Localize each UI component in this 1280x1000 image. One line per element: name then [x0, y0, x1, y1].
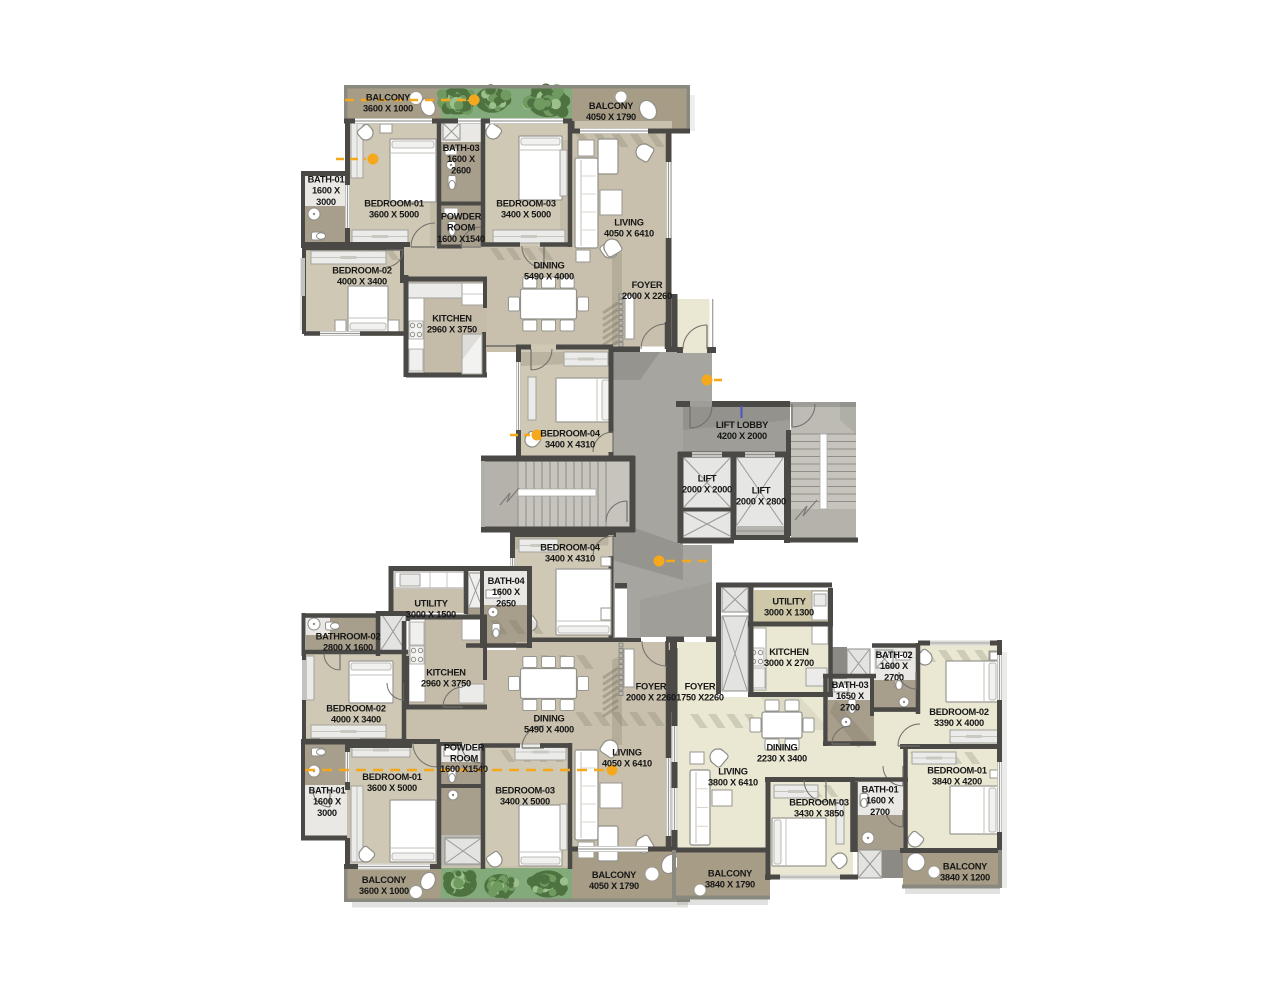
- svg-text:BALCONY: BALCONY: [592, 870, 637, 880]
- svg-text:BEDROOM-01: BEDROOM-01: [364, 199, 424, 209]
- svg-text:BATH-01: BATH-01: [309, 786, 346, 796]
- svg-text:1750 X2260: 1750 X2260: [676, 693, 724, 703]
- svg-text:2960 X 3750: 2960 X 3750: [421, 679, 471, 689]
- svg-text:2960 X 3750: 2960 X 3750: [427, 325, 477, 335]
- svg-text:KITCHEN: KITCHEN: [426, 668, 466, 678]
- svg-text:3840 X 1200: 3840 X 1200: [940, 873, 990, 883]
- svg-text:BALCONY: BALCONY: [943, 862, 988, 872]
- svg-text:3430 X 3850: 3430 X 3850: [794, 809, 844, 819]
- svg-text:LIVING: LIVING: [612, 748, 642, 758]
- svg-text:3000: 3000: [317, 808, 337, 818]
- svg-text:BEDROOM-02: BEDROOM-02: [929, 707, 989, 717]
- svg-text:2000 X 2000: 2000 X 2000: [682, 485, 732, 495]
- svg-text:POWDER: POWDER: [444, 743, 485, 753]
- svg-text:5490 X 4000: 5490 X 4000: [524, 725, 574, 735]
- svg-text:BATH-01: BATH-01: [862, 785, 899, 795]
- svg-text:DINING: DINING: [533, 714, 564, 724]
- svg-text:UTILITY: UTILITY: [772, 597, 806, 607]
- svg-text:BATH-01: BATH-01: [308, 175, 345, 185]
- svg-text:3000 X 1300: 3000 X 1300: [764, 608, 814, 618]
- svg-text:BATH-03: BATH-03: [443, 143, 480, 153]
- svg-text:1600 X: 1600 X: [880, 661, 909, 671]
- svg-text:1600 X1540: 1600 X1540: [437, 234, 485, 244]
- svg-text:2700: 2700: [840, 702, 860, 712]
- svg-text:BEDROOM-02: BEDROOM-02: [332, 266, 392, 276]
- svg-text:1650 X: 1650 X: [836, 691, 865, 701]
- svg-text:1600 X: 1600 X: [312, 186, 341, 196]
- svg-text:LIFT LOBBY: LIFT LOBBY: [716, 420, 769, 430]
- svg-text:ROOM: ROOM: [447, 223, 475, 233]
- svg-text:3400 X 4310: 3400 X 4310: [545, 554, 595, 564]
- svg-text:4050 X 6410: 4050 X 6410: [604, 229, 654, 239]
- svg-text:ROOM: ROOM: [450, 753, 478, 763]
- svg-text:3840 X 1790: 3840 X 1790: [705, 880, 755, 890]
- svg-text:BEDROOM-04: BEDROOM-04: [540, 429, 601, 439]
- svg-text:LIVING: LIVING: [718, 767, 748, 777]
- svg-text:1600 X: 1600 X: [447, 154, 476, 164]
- svg-text:3000 X 1500: 3000 X 1500: [406, 610, 456, 620]
- svg-text:KITCHEN: KITCHEN: [769, 647, 809, 657]
- svg-text:DINING: DINING: [533, 261, 564, 271]
- svg-text:DINING: DINING: [766, 743, 797, 753]
- svg-text:BATH-02: BATH-02: [876, 650, 913, 660]
- svg-text:3400 X 4310: 3400 X 4310: [545, 440, 595, 450]
- svg-text:3000: 3000: [316, 197, 336, 207]
- svg-text:3600 X 1000: 3600 X 1000: [363, 104, 413, 114]
- svg-text:BEDROOM-03: BEDROOM-03: [495, 786, 555, 796]
- svg-text:BATH-04: BATH-04: [488, 576, 526, 586]
- svg-text:BALCONY: BALCONY: [362, 875, 407, 885]
- svg-text:4050 X 6410: 4050 X 6410: [602, 759, 652, 769]
- svg-text:3400 X 5000: 3400 X 5000: [500, 797, 550, 807]
- svg-text:2230 X 3400: 2230 X 3400: [757, 754, 807, 764]
- svg-text:4050 X 1790: 4050 X 1790: [589, 881, 639, 891]
- svg-text:3600 X 5000: 3600 X 5000: [367, 783, 417, 793]
- svg-text:BEDROOM-03: BEDROOM-03: [496, 199, 556, 209]
- svg-text:BEDROOM-03: BEDROOM-03: [789, 798, 849, 808]
- svg-text:BALCONY: BALCONY: [708, 869, 753, 879]
- svg-text:1600 X: 1600 X: [313, 797, 342, 807]
- svg-text:3000 X 2700: 3000 X 2700: [764, 658, 814, 668]
- svg-text:UTILITY: UTILITY: [414, 599, 448, 609]
- svg-text:4050 X 1790: 4050 X 1790: [586, 112, 636, 122]
- svg-text:BEDROOM-01: BEDROOM-01: [362, 772, 422, 782]
- svg-text:KITCHEN: KITCHEN: [432, 314, 472, 324]
- svg-text:4000 X 3400: 4000 X 3400: [331, 715, 381, 725]
- svg-text:BEDROOM-02: BEDROOM-02: [326, 704, 386, 714]
- svg-text:BATHROOM-02: BATHROOM-02: [316, 632, 381, 642]
- svg-text:3400 X 5000: 3400 X 5000: [501, 210, 551, 220]
- svg-text:2800 X 1600: 2800 X 1600: [323, 643, 373, 653]
- svg-text:2700: 2700: [870, 807, 890, 817]
- svg-text:LIFT: LIFT: [698, 474, 717, 484]
- svg-text:2600: 2600: [451, 165, 471, 175]
- svg-text:3600 X 5000: 3600 X 5000: [369, 210, 419, 220]
- svg-text:BALCONY: BALCONY: [589, 101, 634, 111]
- svg-text:BEDROOM-04: BEDROOM-04: [540, 543, 601, 553]
- svg-text:3390 X 4000: 3390 X 4000: [934, 718, 984, 728]
- svg-text:2000 X 2260: 2000 X 2260: [626, 693, 676, 703]
- svg-text:2700: 2700: [884, 672, 904, 682]
- svg-text:BALCONY: BALCONY: [366, 93, 411, 103]
- svg-text:LIVING: LIVING: [614, 218, 644, 228]
- svg-text:5490 X 4000: 5490 X 4000: [524, 272, 574, 282]
- svg-text:3840 X 4200: 3840 X 4200: [932, 777, 982, 787]
- svg-text:LIFT: LIFT: [752, 486, 771, 496]
- svg-text:BATH-03: BATH-03: [832, 680, 869, 690]
- svg-text:3600 X 1000: 3600 X 1000: [359, 886, 409, 896]
- svg-text:1600 X: 1600 X: [866, 796, 895, 806]
- svg-text:2000 X 2260: 2000 X 2260: [622, 291, 672, 301]
- svg-text:1600 X1540: 1600 X1540: [440, 764, 488, 774]
- svg-text:FOYER: FOYER: [685, 682, 716, 692]
- svg-text:2650: 2650: [496, 598, 516, 608]
- svg-text:4000 X 3400: 4000 X 3400: [337, 277, 387, 287]
- svg-text:FOYER: FOYER: [632, 280, 663, 290]
- svg-text:FOYER: FOYER: [636, 682, 667, 692]
- svg-text:2000 X 2800: 2000 X 2800: [736, 497, 786, 507]
- svg-text:4200 X 2000: 4200 X 2000: [717, 431, 767, 441]
- svg-text:3800 X 6410: 3800 X 6410: [708, 778, 758, 788]
- svg-text:POWDER: POWDER: [441, 212, 482, 222]
- svg-text:BEDROOM-01: BEDROOM-01: [927, 766, 987, 776]
- svg-text:1600 X: 1600 X: [492, 587, 521, 597]
